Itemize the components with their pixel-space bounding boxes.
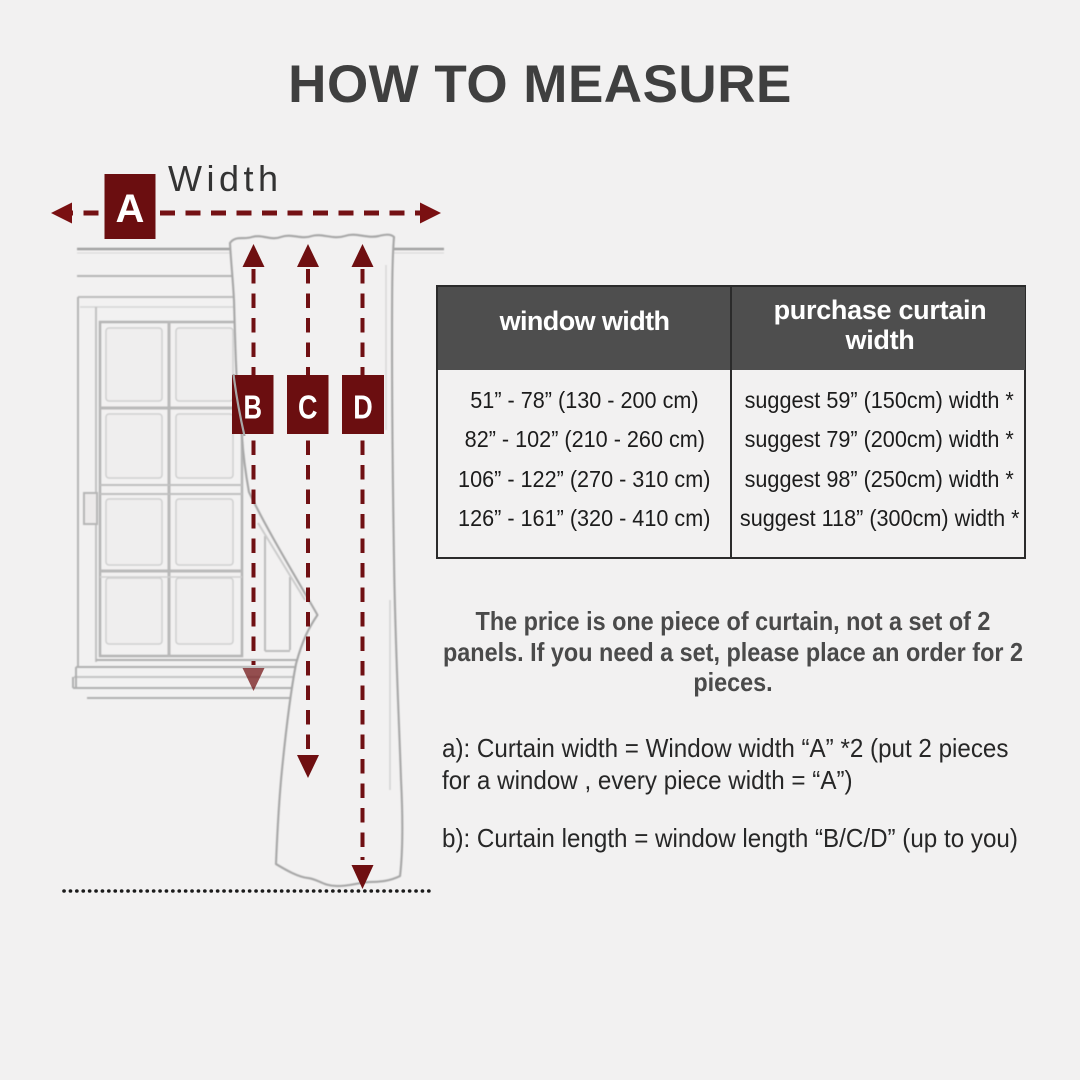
- svg-text:C: C: [298, 389, 318, 426]
- svg-text:A: A: [116, 187, 145, 231]
- svg-text:D: D: [353, 389, 373, 426]
- svg-text:B: B: [244, 389, 263, 426]
